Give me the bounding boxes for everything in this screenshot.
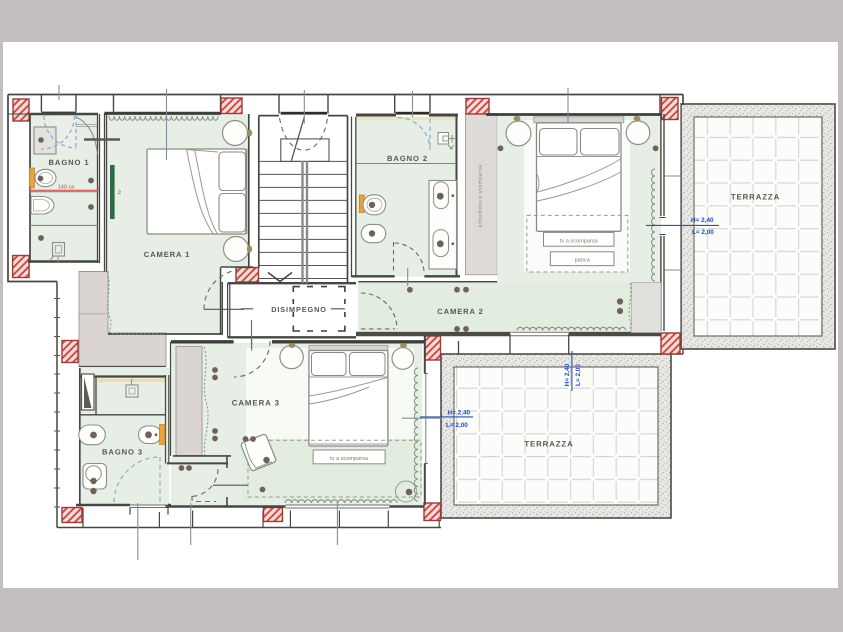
svg-text:TERRAZZA: TERRAZZA — [524, 440, 573, 449]
svg-text:CAMERA 3: CAMERA 3 — [232, 399, 280, 408]
svg-text:BAGNO 3: BAGNO 3 — [102, 448, 143, 457]
svg-text:L= 2,00: L= 2,00 — [575, 364, 582, 386]
svg-text:TERRAZZA: TERRAZZA — [731, 193, 780, 202]
svg-text:tv a scomparsa: tv a scomparsa — [330, 456, 369, 462]
svg-text:CAMERA 1: CAMERA 1 — [144, 250, 191, 259]
svg-text:L= 2,00: L= 2,00 — [446, 422, 468, 429]
svg-text:H= 2,40: H= 2,40 — [448, 410, 471, 417]
svg-text:tv a scomparsa: tv a scomparsa — [560, 238, 599, 244]
svg-text:tv: tv — [117, 190, 123, 195]
svg-text:BAGNO 1: BAGNO 1 — [49, 158, 90, 167]
svg-text:H= 2,40: H= 2,40 — [564, 363, 571, 386]
svg-text:DISIMPEGNO: DISIMPEGNO — [271, 305, 327, 314]
svg-text:armadiatura scomparsa: armadiatura scomparsa — [478, 164, 484, 227]
svg-text:L= 2,00: L= 2,00 — [692, 229, 714, 236]
svg-text:BAGNO 2: BAGNO 2 — [387, 154, 428, 163]
svg-text:panca: panca — [575, 258, 591, 264]
svg-text:CAMERA 2: CAMERA 2 — [437, 307, 484, 316]
svg-text:140 ca: 140 ca — [58, 185, 76, 191]
svg-text:H= 2,40: H= 2,40 — [691, 217, 714, 224]
